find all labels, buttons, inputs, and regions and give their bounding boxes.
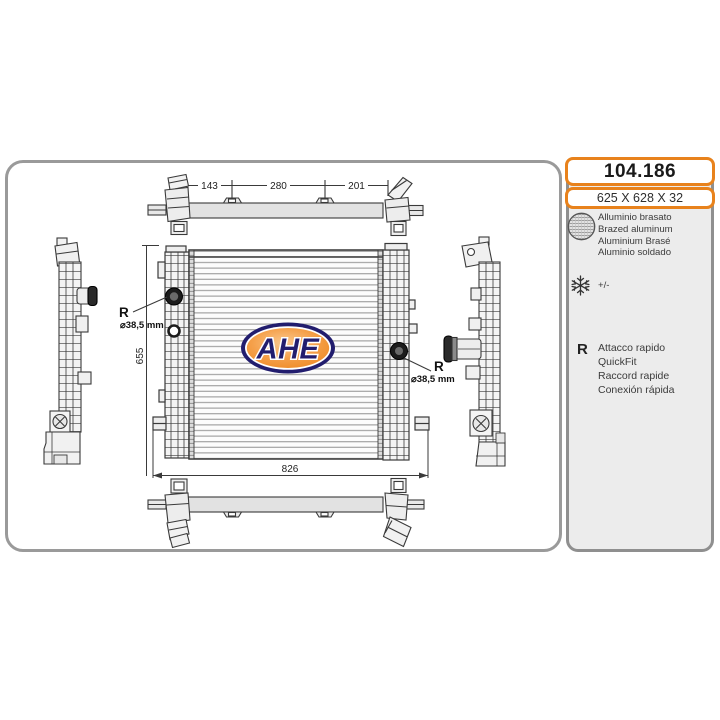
- front-right-tank: [383, 244, 429, 461]
- left-port-diameter: ⌀38,5 mm: [120, 320, 164, 331]
- right-side-hose-fitting: [444, 336, 481, 362]
- left-side-foot: [44, 432, 80, 464]
- left-side-view: [44, 238, 97, 464]
- dim-655: 655: [135, 347, 146, 364]
- bottom-view-left-bracket: [148, 479, 190, 548]
- top-view-left-bracket: [148, 175, 190, 235]
- dim-826: 826: [282, 464, 299, 475]
- bottom-view-bar: [185, 497, 383, 517]
- ahe-logo-text: AHE: [256, 334, 321, 366]
- left-port-symbol: R: [119, 305, 129, 320]
- top-view-right-bracket: [385, 178, 423, 236]
- right-side-view: [444, 237, 505, 466]
- left-side-boss: [50, 411, 70, 432]
- left-port-annotation: R ⌀38,5 mm: [119, 297, 167, 331]
- dim-280: 280: [270, 181, 287, 192]
- top-view: 143 280 201: [148, 175, 423, 236]
- dim-201: 201: [348, 181, 365, 192]
- ahe-logo: AHE: [241, 323, 335, 374]
- right-port-symbol: R: [434, 359, 444, 374]
- left-side-hose-fitting: [77, 287, 97, 306]
- right-side-boss: [470, 410, 492, 436]
- bottom-view: [148, 479, 424, 548]
- right-port-diameter: ⌀38,5 mm: [411, 374, 455, 385]
- front-left-tank: [153, 246, 189, 458]
- bottom-view-right-bracket: [384, 479, 425, 547]
- radiator-technical-drawing: 143 280 201: [0, 0, 720, 720]
- dim-143: 143: [201, 181, 218, 192]
- top-view-bar: [185, 198, 383, 218]
